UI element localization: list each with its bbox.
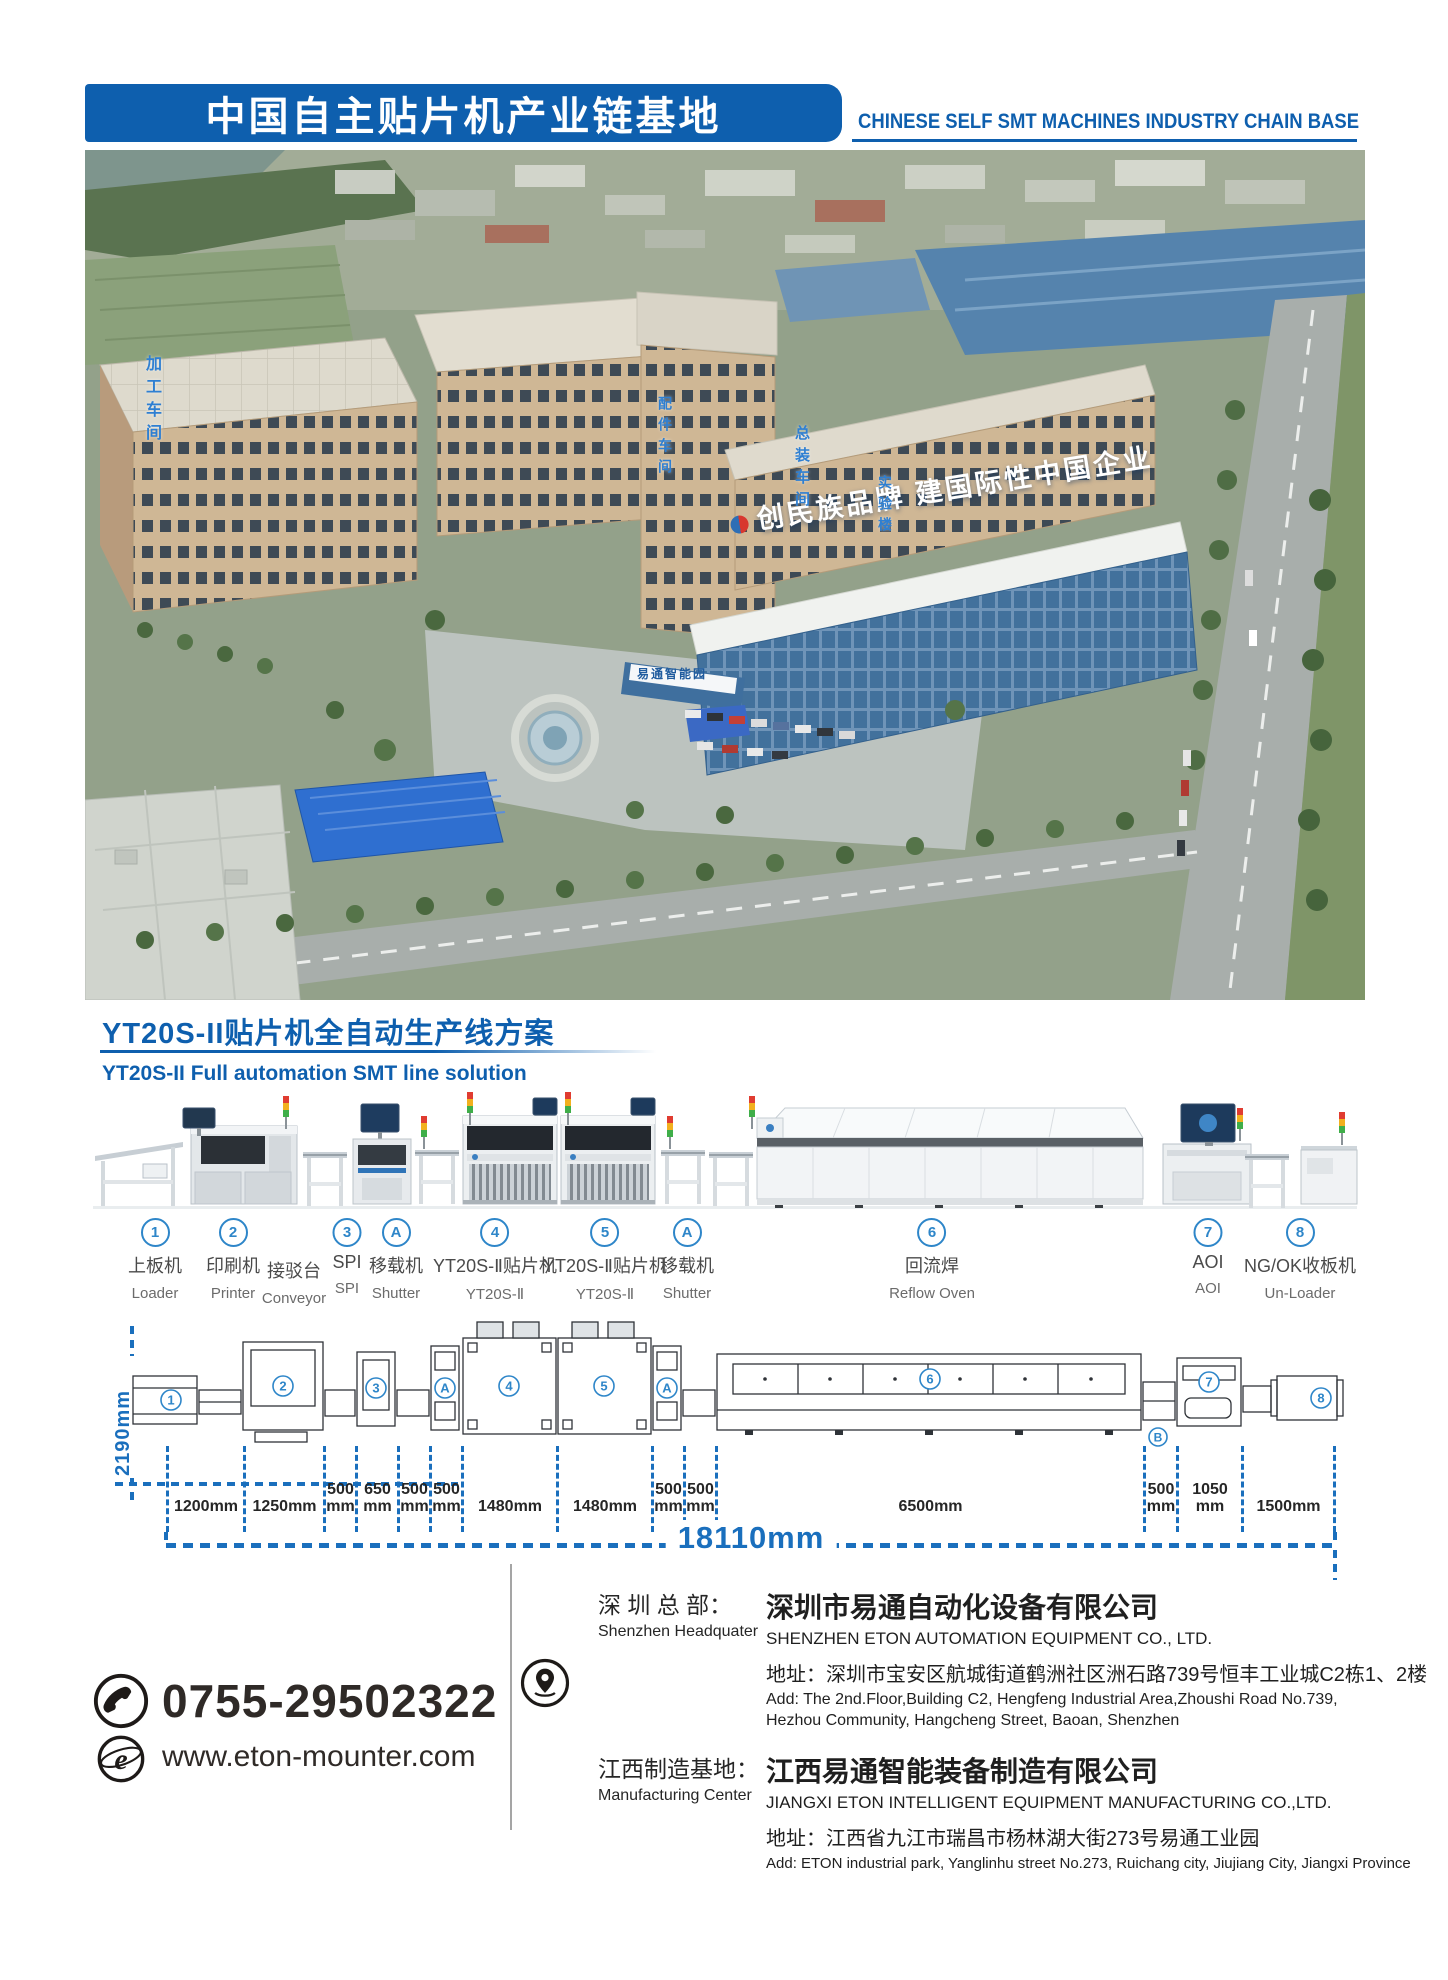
station-label-en: AOI (1192, 1280, 1223, 1297)
station-label-en: SPI (332, 1280, 361, 1297)
dimension-cell: 1480mm (461, 1446, 556, 1532)
station-spi: 3SPISPI (332, 1218, 361, 1297)
station-reflow: 6回流焊Reflow Oven (889, 1218, 975, 1302)
website-icon: e (96, 1734, 146, 1784)
station-label-en: YT20S-Ⅱ (433, 1285, 557, 1303)
gate-sign: 易通智能园 (637, 665, 707, 682)
topview-marker: 1 (167, 1393, 174, 1408)
station-label-cn: AOI (1192, 1252, 1223, 1273)
location-label-cn: 江西制造基地： (598, 1750, 766, 1784)
loader-machine (95, 1142, 183, 1206)
station-label-en: Printer (206, 1285, 260, 1302)
station-loader: 1上板机Loader (128, 1218, 182, 1302)
station-badge: 2 (219, 1218, 248, 1247)
station-label-en: Reflow Oven (889, 1285, 975, 1302)
conveyor-machine-2 (709, 1152, 753, 1206)
station-label-cn: 移载机 (369, 1252, 423, 1278)
station-label-cn: 印刷机 (206, 1252, 260, 1278)
conveyor-machine (303, 1152, 347, 1206)
station-badge: 3 (332, 1218, 361, 1247)
station-conveyor: 接驳台Conveyor (262, 1218, 326, 1307)
topview-marker: A (440, 1381, 450, 1396)
dimension-cell: 650mm (355, 1446, 397, 1532)
building-label-2: 配件车间 (655, 396, 675, 480)
location-block-jiangxi: 江西制造基地： Manufacturing Center 江西易通智能装备制造有… (598, 1750, 1373, 1874)
page-title-en: CHINESE SELF SMT MACHINES INDUSTRY CHAIN… (858, 110, 1359, 134)
location-icon (518, 1656, 572, 1710)
shutter-machine-2 (661, 1116, 705, 1204)
dimension-cell: 1480mm (556, 1446, 651, 1532)
address-en: Add: ETON industrial park, Yanglinhu str… (766, 1854, 1426, 1874)
conveyor-machine-3 (1245, 1154, 1289, 1208)
reflow-oven-machine (749, 1096, 1143, 1208)
station-label-cn: SPI (332, 1252, 361, 1273)
depth-dash-top (130, 1326, 134, 1356)
dimension-cell: 1500mm (1241, 1446, 1336, 1532)
dimension-cell: 500mm (397, 1446, 429, 1532)
smt-line-photo (85, 1092, 1365, 1214)
dimension-cell: 500mm (323, 1446, 355, 1532)
station-badge: 5 (590, 1218, 619, 1247)
printer-machine (183, 1096, 297, 1204)
building-label-4: 实验楼 (875, 475, 895, 538)
aoi-machine (1163, 1104, 1251, 1204)
page-title-cn: 中国自主贴片机产业链基地 (206, 84, 722, 142)
station-badge: A (673, 1218, 702, 1247)
contact-divider (510, 1564, 512, 1830)
header-banner: 中国自主贴片机产业链基地 (85, 84, 842, 142)
company-name-en: SHENZHEN ETON AUTOMATION EQUIPMENT CO., … (766, 1629, 1427, 1649)
station-label-cn: YT20S-Ⅱ贴片机 (543, 1252, 667, 1278)
section-underline (100, 1050, 656, 1053)
spi-machine (353, 1104, 411, 1204)
station-label-en: Shutter (369, 1285, 423, 1302)
address-cn: 地址：江西省九江市瑞昌市杨林湖大街273号易通工业园 (766, 1822, 1426, 1851)
topview-marker: 8 (1317, 1391, 1324, 1406)
phone-number[interactable]: 0755-29502322 (162, 1674, 497, 1728)
station-label-en: YT20S-Ⅱ (543, 1285, 667, 1303)
dimension-cell: 500mm (1143, 1446, 1176, 1532)
phone-icon (92, 1672, 150, 1730)
station-shutter-2: A移载机Shutter (660, 1218, 714, 1302)
station-badge: 7 (1193, 1218, 1222, 1247)
topview-marker: A (662, 1381, 672, 1396)
station-label-cn: 上板机 (128, 1252, 182, 1278)
location-label-en: Shenzhen Headquater (598, 1623, 766, 1641)
website-link[interactable]: www.eton-mounter.com (162, 1740, 475, 1774)
location-block-shenzhen: 深 圳 总 部： Shenzhen Headquater 深圳市易通自动化设备有… (598, 1586, 1373, 1732)
station-mounter-2: 5YT20S-Ⅱ贴片机YT20S-Ⅱ (543, 1218, 667, 1303)
topview-marker: 3 (372, 1381, 379, 1396)
header-underline (852, 139, 1357, 142)
address-cn: 地址：深圳市宝安区航城街道鹤洲社区洲石路739号恒丰工业城C2栋1、2楼 (766, 1658, 1427, 1687)
station-badge: A (382, 1218, 411, 1247)
station-labels: 1上板机Loader 2印刷机Printer 接驳台Conveyor 3SPIS… (85, 1218, 1365, 1308)
company-name-cn: 深圳市易通自动化设备有限公司 (766, 1586, 1427, 1626)
company-name-en: JIANGXI ETON INTELLIGENT EQUIPMENT MANUF… (766, 1793, 1426, 1813)
station-label-en: Un-Loader (1244, 1285, 1356, 1302)
dimension-total-label: 18110mm (666, 1520, 837, 1556)
topview-marker: 2 (279, 1379, 286, 1394)
section-title: YT20S-II贴片机全自动生产线方案 (102, 1010, 554, 1052)
address-en: Add: The 2nd.Floor,Building C2, Hengfeng… (766, 1690, 1366, 1732)
station-label-cn: 接驳台 (262, 1257, 326, 1283)
dimension-cell: 1200mm (166, 1446, 243, 1532)
dimension-depth-label: 2190mm (112, 1358, 135, 1476)
station-printer: 2印刷机Printer (206, 1218, 260, 1302)
white-rooftop (85, 785, 300, 1000)
section-subtitle: YT20S-II Full automation SMT line soluti… (102, 1062, 527, 1086)
brochure-page: 中国自主贴片机产业链基地 CHINESE SELF SMT MACHINES I… (0, 0, 1448, 1980)
station-badge: 6 (918, 1218, 947, 1247)
building-label-1: 加工车间 (139, 355, 163, 447)
dimension-cell: 1050mm (1176, 1446, 1241, 1532)
building-label-3: 总装车间 (791, 425, 812, 513)
eton-logo-icon (729, 514, 750, 535)
location-label-en: Manufacturing Center (598, 1787, 766, 1805)
station-label-cn: 移载机 (660, 1252, 714, 1278)
factory-aerial-photo: 创民族品牌 建国际性中国企业 加工车间 配件车间 总装车间 实验楼 易通智能园 (85, 150, 1365, 1000)
mounter-machine-1 (463, 1092, 557, 1204)
company-name-cn: 江西易通智能装备制造有限公司 (766, 1750, 1426, 1790)
aerial-scene (85, 150, 1365, 1000)
location-label-cn: 深 圳 总 部： (598, 1586, 766, 1620)
station-mounter-1: 4YT20S-Ⅱ贴片机YT20S-Ⅱ (433, 1218, 557, 1303)
station-label-cn: NG/OK收板机 (1244, 1252, 1356, 1278)
mounter-machine-2 (561, 1092, 655, 1204)
total-right-tail (1333, 1550, 1337, 1580)
station-label-cn: 回流焊 (889, 1252, 975, 1278)
station-label-en: Conveyor (262, 1290, 326, 1307)
station-label-en: Loader (128, 1285, 182, 1302)
unloader-machine (1301, 1112, 1357, 1204)
building-center (415, 298, 663, 536)
topview-marker: 7 (1205, 1375, 1212, 1390)
station-label-cn: YT20S-Ⅱ贴片机 (433, 1252, 557, 1278)
station-unloader: 8NG/OK收板机Un-Loader (1244, 1218, 1356, 1302)
station-aoi: 7AOIAOI (1192, 1218, 1223, 1297)
shutter-machine-1 (415, 1116, 459, 1204)
dimension-cell: 1250mm (243, 1446, 323, 1532)
topview-diagram: 1 2 3 A 4 5 A 6 B 7 8 (85, 1318, 1365, 1448)
station-shutter-1: A移载机Shutter (369, 1218, 423, 1302)
topview-marker: 6 (926, 1372, 933, 1387)
topview-marker: 5 (600, 1379, 607, 1394)
topview-marker: B (1154, 1431, 1163, 1445)
dimension-cell: 500mm (429, 1446, 461, 1532)
station-badge: 4 (480, 1218, 509, 1247)
station-badge: 8 (1285, 1218, 1314, 1247)
topview-marker: 4 (505, 1379, 513, 1394)
station-badge: 1 (141, 1218, 170, 1247)
station-label-en: Shutter (660, 1285, 714, 1302)
